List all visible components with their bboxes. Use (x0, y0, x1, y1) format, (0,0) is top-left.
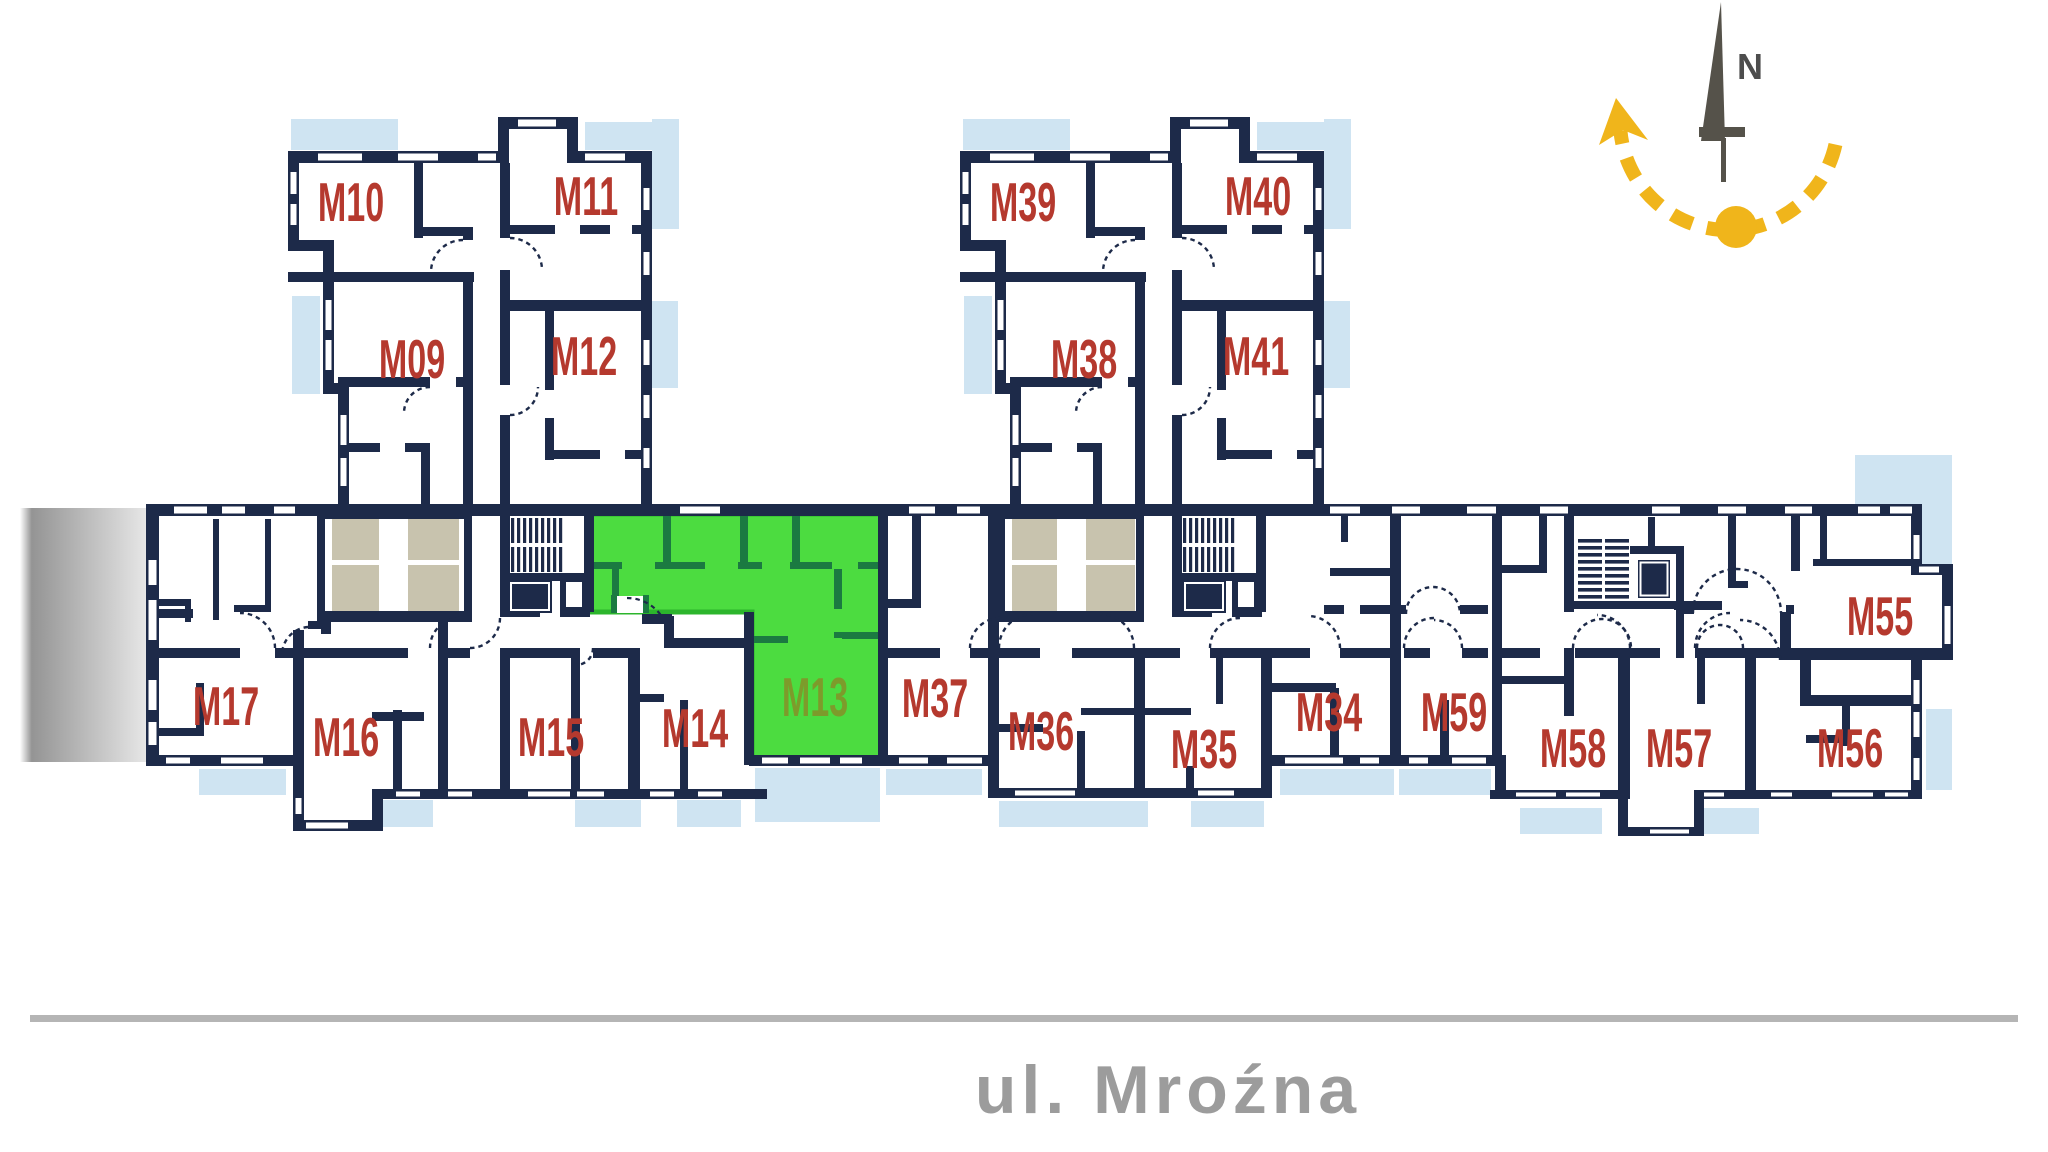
svg-text:M11: M11 (554, 166, 618, 227)
svg-text:N: N (1737, 46, 1763, 87)
svg-text:M14: M14 (662, 698, 729, 759)
svg-text:M37: M37 (902, 668, 968, 729)
svg-text:M17: M17 (193, 676, 259, 737)
svg-text:M35: M35 (1171, 719, 1237, 780)
svg-text:M15: M15 (518, 707, 584, 768)
svg-text:M38: M38 (1051, 329, 1117, 390)
svg-text:M56: M56 (1817, 718, 1883, 779)
svg-text:M12: M12 (551, 326, 617, 387)
svg-text:M39: M39 (990, 172, 1056, 233)
svg-text:M59: M59 (1421, 682, 1487, 743)
svg-text:M34: M34 (1296, 682, 1363, 743)
svg-text:M58: M58 (1540, 718, 1606, 779)
svg-text:M40: M40 (1225, 166, 1291, 227)
svg-text:M36: M36 (1008, 701, 1074, 762)
svg-text:M55: M55 (1847, 586, 1913, 647)
svg-text:M13: M13 (782, 667, 848, 728)
svg-text:M16: M16 (313, 707, 379, 768)
svg-text:ul. Mroźna: ul. Mroźna (975, 1052, 1361, 1128)
svg-text:M10: M10 (318, 172, 384, 233)
svg-text:M41: M41 (1223, 326, 1289, 387)
svg-text:M57: M57 (1646, 718, 1712, 779)
svg-text:M09: M09 (379, 329, 445, 390)
